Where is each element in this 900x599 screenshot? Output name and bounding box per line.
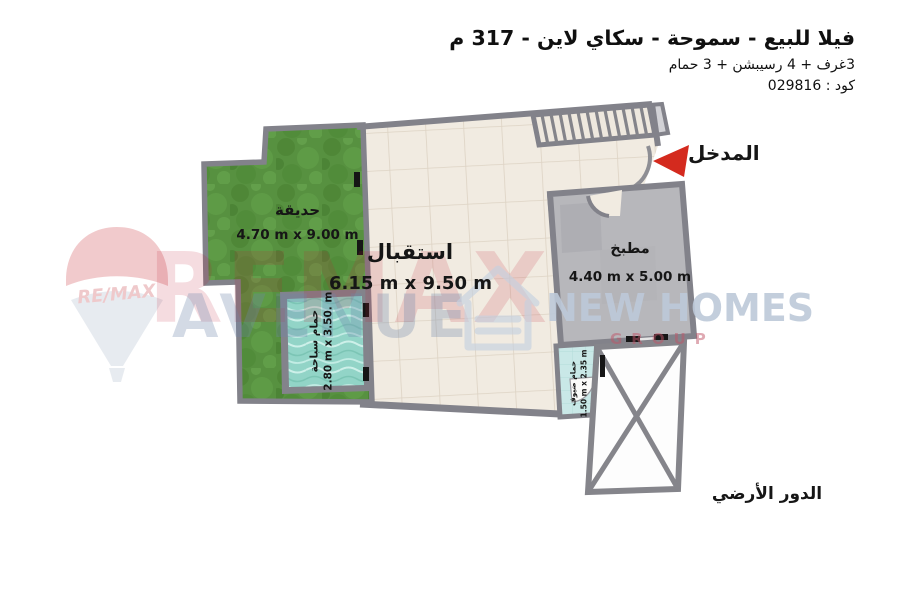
entrance-arrow-icon: [653, 145, 689, 177]
guest-bathroom-label-group: حمام ضيوف 1.50 m x 2.35 m: [549, 350, 609, 416]
guest-bathroom-label: حمام ضيوف: [569, 360, 580, 405]
reception-label: استقبال: [330, 240, 490, 264]
pool-label: حمام سباحة: [308, 310, 322, 372]
listing-title: فيلا للبيع - سموحة - سكاي لاين - 317 م: [449, 26, 855, 50]
pool-label-group: حمام سباحة 2.80 m x 3.50. m: [271, 291, 373, 391]
listing-header: فيلا للبيع - سموحة - سكاي لاين - 317 م 3…: [449, 26, 855, 94]
kitchen-area: [550, 184, 694, 345]
pool-dimensions: 2.80 m x 3.50. m: [322, 291, 336, 390]
garden-label: حديقة: [250, 201, 345, 219]
floorplan-canvas: فيلا للبيع - سموحة - سكاي لاين - 317 م 3…: [0, 0, 900, 599]
kitchen-label: مطبخ: [580, 241, 680, 257]
guest-bathroom-dimensions: 1.50 m x 2.35 m: [579, 349, 590, 417]
listing-subtitle: 3غرف + 4 رسيبشن + 3 حمام: [449, 57, 855, 73]
floor-name-label: الدور الأرضي: [700, 484, 834, 504]
entrance-label: المدخل: [688, 141, 772, 165]
kitchen-dimensions: 4.40 m x 5.00 m: [562, 269, 698, 285]
listing-code: كود : 029816: [449, 78, 855, 94]
